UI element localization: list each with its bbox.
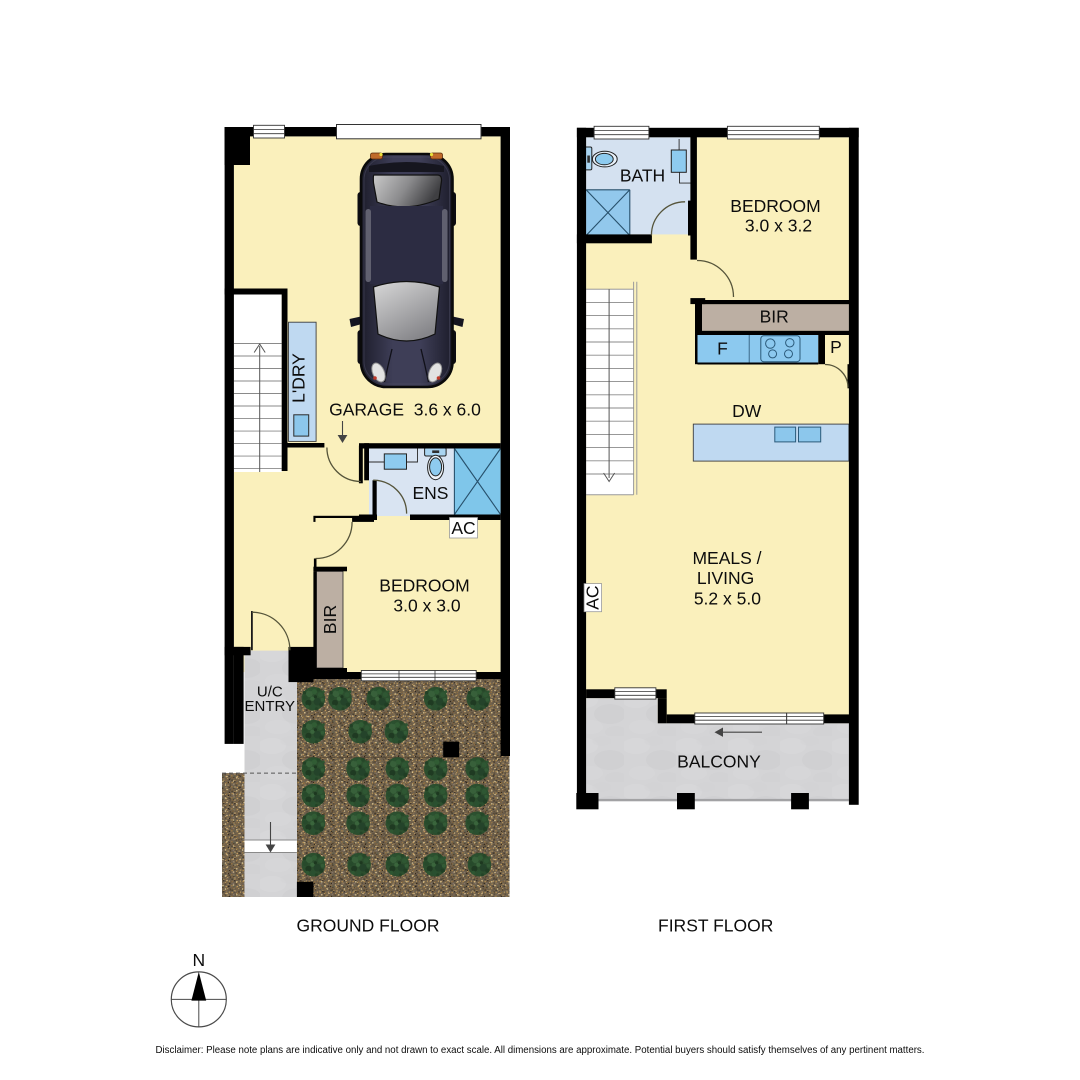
svg-text:BEDROOM: BEDROOM xyxy=(379,575,469,595)
svg-text:BIR: BIR xyxy=(320,605,340,634)
svg-text:AC: AC xyxy=(583,585,603,609)
svg-text:FIRST FLOOR: FIRST FLOOR xyxy=(658,915,773,935)
svg-text:GARAGE 3.6 x 6.0: GARAGE 3.6 x 6.0 xyxy=(329,399,481,419)
svg-text:L'DRY: L'DRY xyxy=(289,353,309,403)
svg-text:MEALS /: MEALS / xyxy=(692,548,761,568)
svg-text:BEDROOM: BEDROOM xyxy=(730,196,820,216)
svg-text:BIR: BIR xyxy=(760,306,789,326)
svg-text:ENS: ENS xyxy=(413,483,449,503)
svg-text:5.2 x 5.0: 5.2 x 5.0 xyxy=(694,589,761,609)
svg-text:LIVING: LIVING xyxy=(697,568,754,588)
svg-text:3.0 x 3.0: 3.0 x 3.0 xyxy=(393,596,460,616)
svg-text:F: F xyxy=(717,339,728,359)
svg-text:GROUND FLOOR: GROUND FLOOR xyxy=(297,915,440,935)
svg-text:Disclaimer: Please note plans: Disclaimer: Please note plans are indica… xyxy=(156,1045,925,1056)
svg-text:P: P xyxy=(830,337,842,357)
svg-text:3.0 x 3.2: 3.0 x 3.2 xyxy=(745,215,812,235)
svg-text:ENTRY: ENTRY xyxy=(245,698,296,715)
svg-text:BALCONY: BALCONY xyxy=(677,752,761,772)
svg-text:N: N xyxy=(192,950,205,970)
svg-text:DW: DW xyxy=(732,401,762,421)
svg-text:AC: AC xyxy=(451,518,475,538)
svg-text:BATH: BATH xyxy=(620,166,665,186)
